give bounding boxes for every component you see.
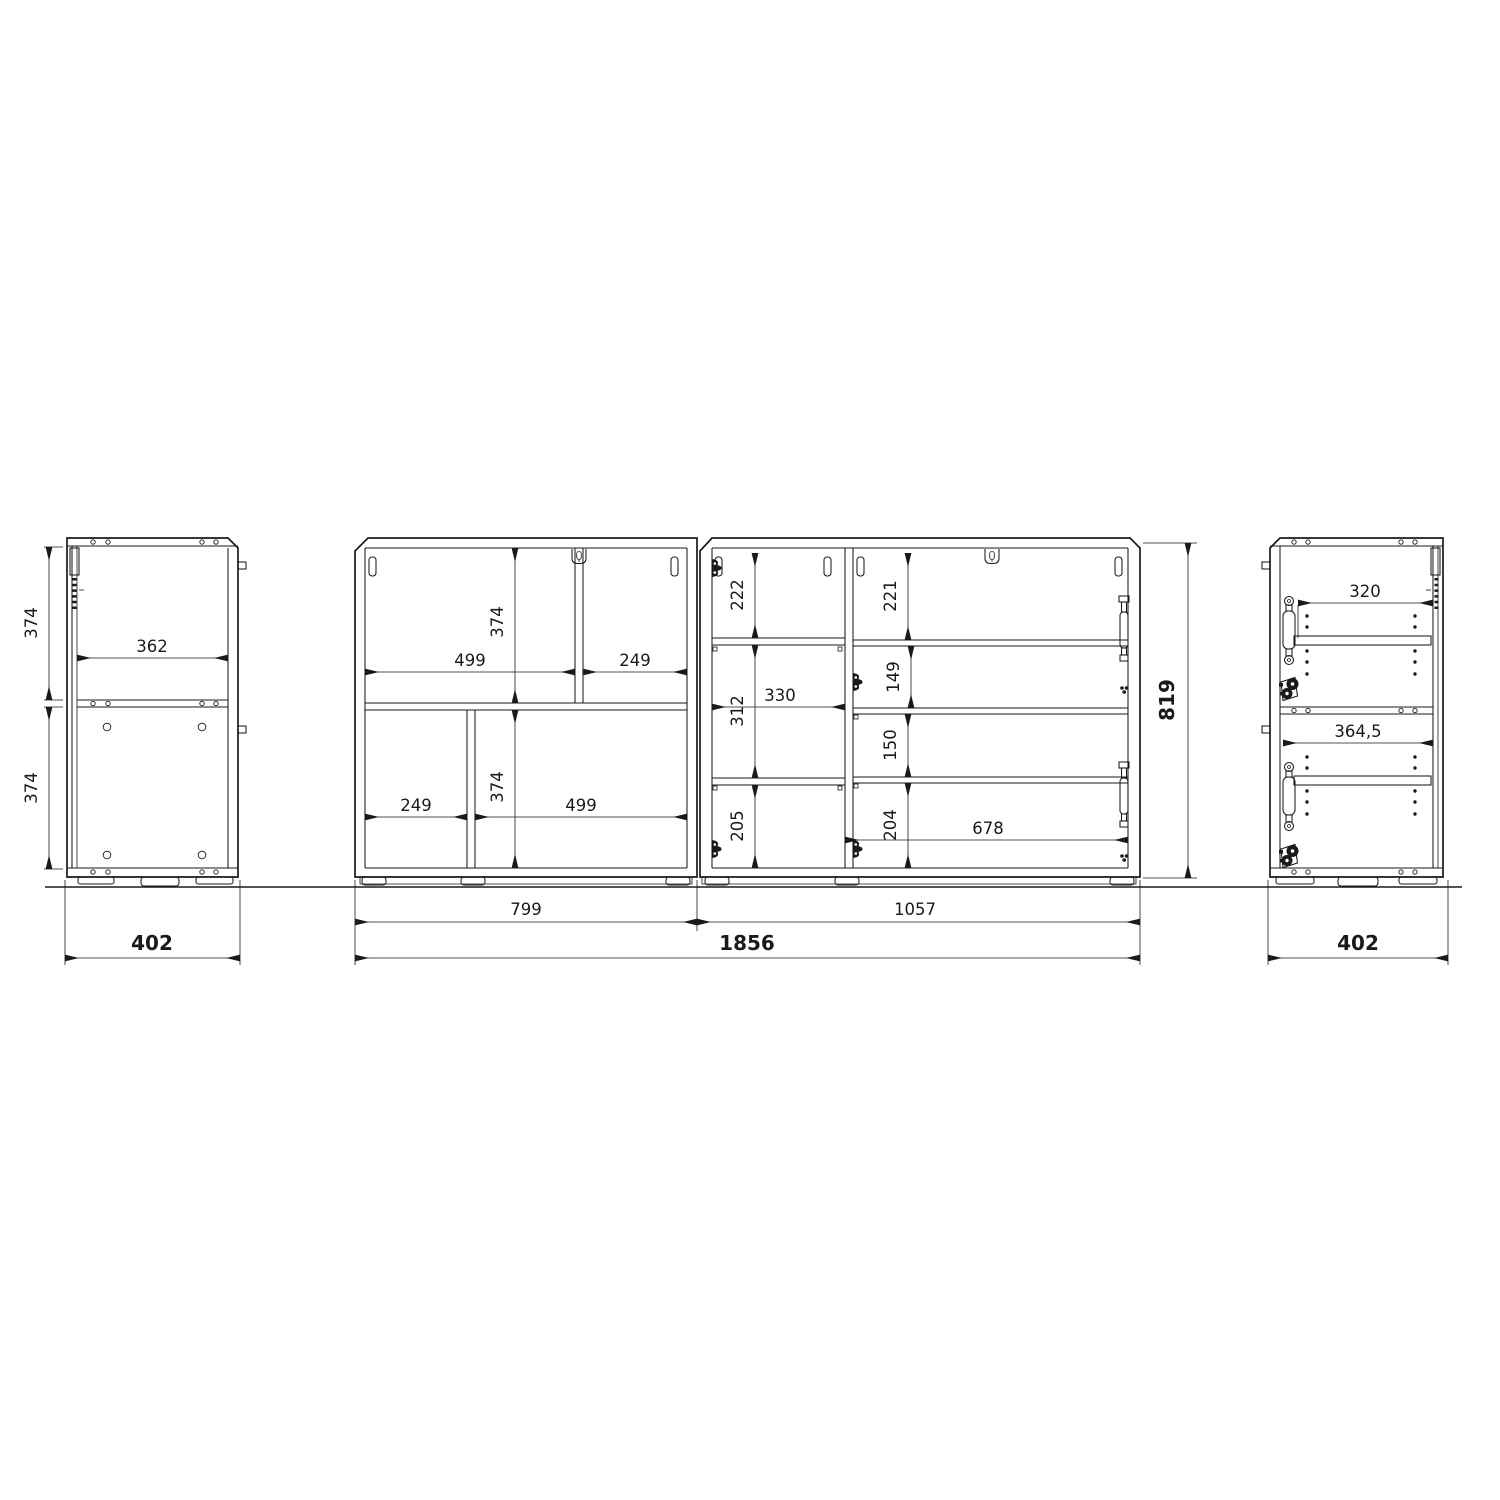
cup-hinge bbox=[712, 840, 722, 858]
dim-label-depth: 402 bbox=[131, 931, 173, 955]
dim-label-total-width: 1856 bbox=[719, 931, 775, 955]
dim-label: 499 bbox=[565, 796, 597, 815]
overall-dimensions: 1856 819 bbox=[355, 543, 1197, 958]
hanger-slot bbox=[824, 557, 831, 576]
feet bbox=[78, 877, 233, 886]
dim-label: 678 bbox=[972, 819, 1004, 838]
hanger-slot bbox=[1115, 557, 1122, 576]
left-side-dimensions: 374 374 362 402 bbox=[22, 547, 240, 965]
dim-label: 374 bbox=[22, 772, 41, 804]
dim-label: 312 bbox=[728, 695, 747, 727]
keyhole-hanger bbox=[985, 549, 999, 564]
hanger-slot bbox=[671, 557, 678, 576]
dim-label: 222 bbox=[728, 579, 747, 611]
dim-label: 499 bbox=[454, 651, 486, 670]
technical-drawing-page: 374 374 362 402 bbox=[0, 0, 1500, 1500]
dim-label: 149 bbox=[884, 661, 903, 693]
cup-hinge bbox=[1279, 678, 1299, 701]
foot bbox=[1276, 877, 1314, 884]
drawer-rail bbox=[1294, 776, 1431, 785]
shelf-pin bbox=[1262, 562, 1270, 569]
foot bbox=[141, 877, 179, 886]
front-right-panels bbox=[712, 548, 1128, 868]
dim-label: 249 bbox=[400, 796, 432, 815]
dim-label: 249 bbox=[619, 651, 651, 670]
dim-label: 799 bbox=[510, 900, 542, 919]
front-right-dimensions: 222 312 330 205 221 149 150 204 678 1057 bbox=[697, 553, 1140, 965]
keyhole-hanger bbox=[572, 549, 586, 564]
hinge-mark bbox=[1120, 854, 1128, 862]
gas-strut bbox=[1283, 597, 1295, 665]
cup-hinge bbox=[853, 673, 863, 691]
dim-label: 150 bbox=[881, 729, 900, 761]
sideboard-dimension-drawing: 374 374 362 402 bbox=[0, 0, 1500, 1500]
left-side-panels bbox=[67, 546, 238, 868]
front-right-cabinet: 222 312 330 205 221 149 150 204 678 1057 bbox=[697, 538, 1140, 965]
shelf-pin bbox=[238, 562, 246, 569]
feet bbox=[1276, 877, 1437, 886]
cup-hinge bbox=[853, 840, 863, 858]
upper-compartment-hardware bbox=[1279, 597, 1431, 701]
dim-label: 221 bbox=[881, 580, 900, 612]
cup-hinge bbox=[1279, 845, 1299, 868]
dim-label: 364,5 bbox=[1334, 722, 1381, 741]
dim-label: 330 bbox=[764, 686, 796, 705]
dim-label: 362 bbox=[136, 637, 168, 656]
plinth bbox=[702, 877, 1136, 885]
foot bbox=[1399, 877, 1437, 884]
plinth bbox=[360, 877, 692, 885]
dim-label: 320 bbox=[1349, 582, 1381, 601]
dim-label: 374 bbox=[22, 607, 41, 639]
dim-label-total-height: 819 bbox=[1155, 679, 1179, 721]
hanger-slot bbox=[369, 557, 376, 576]
right-side-view: 320 364,5 402 bbox=[1262, 538, 1448, 965]
dim-label: 205 bbox=[728, 810, 747, 842]
foot bbox=[196, 877, 233, 884]
front-left-dimensions: 499 249 374 249 499 374 799 bbox=[355, 548, 697, 965]
shelf-pin bbox=[238, 726, 246, 733]
dim-label: 374 bbox=[488, 606, 507, 638]
dim-label-depth: 402 bbox=[1337, 931, 1379, 955]
lower-compartment-hardware bbox=[1279, 755, 1431, 867]
front-left-outline bbox=[355, 538, 697, 877]
dim-label: 204 bbox=[881, 809, 900, 841]
left-side-view: 374 374 362 402 bbox=[22, 538, 246, 965]
front-left-panels bbox=[365, 548, 687, 868]
dim-label: 1057 bbox=[894, 900, 936, 919]
drawer-rail bbox=[1294, 636, 1431, 645]
cup-hinge bbox=[712, 559, 722, 577]
dim-label: 374 bbox=[488, 771, 507, 803]
shelf-pin bbox=[1262, 726, 1270, 733]
foot bbox=[1338, 877, 1378, 886]
hanger-slot bbox=[857, 557, 864, 576]
hinge-mark bbox=[1120, 686, 1128, 694]
gas-strut bbox=[1283, 763, 1295, 831]
foot bbox=[78, 877, 114, 884]
front-left-cabinet: 499 249 374 249 499 374 799 bbox=[355, 538, 697, 965]
